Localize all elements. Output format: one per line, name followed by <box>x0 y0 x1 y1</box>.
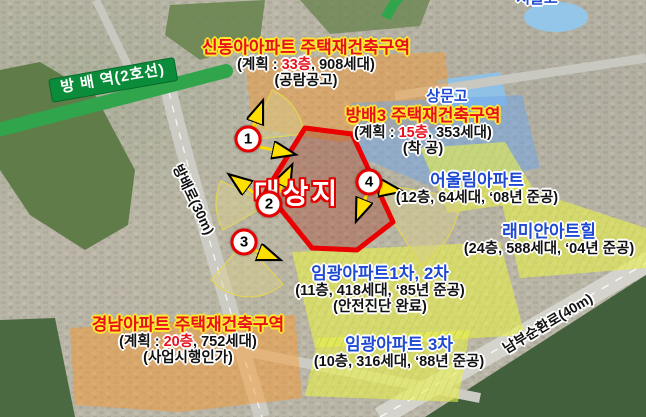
zone-title: 방배3 주택재건축구역 <box>346 106 501 125</box>
marker-4: 4 <box>356 169 383 196</box>
zone-status: (공람공고) <box>202 73 410 89</box>
apartment-label-raemian: 래미안아트힐 (24층, 588세대, ‘04년 준공) <box>464 222 634 257</box>
plan-floors: 33층 <box>282 57 311 73</box>
apartment-details: (24층, 588세대, ‘04년 준공) <box>464 241 634 257</box>
school-label-seoul: 서울고 <box>516 0 557 8</box>
zone-status: (착 공) <box>346 141 501 157</box>
zone-title: 신동아아파트 주택재건축구역 <box>202 38 410 57</box>
apartment-name: 래미안아트힐 <box>464 222 634 241</box>
zone-plan: (계획 : 15층, 353세대) <box>346 125 501 141</box>
aerial-map-canvas: 방 배 역(2호선) 상문고 서울고 방배로(30m) 남부순환로(40m) 대… <box>0 0 646 417</box>
apartment-label-imgwang12: 임광아파트1차, 2차 (11층, 418세대, ‘85년 준공) (안전진단 … <box>295 264 465 316</box>
school-label-sangmun: 상문고 <box>426 89 467 106</box>
apartment-label-imgwang3: 임광아파트 3차 (10층, 316세대, ‘88년 준공) <box>314 335 484 370</box>
zone-label-bangbae3: 방배3 주택재건축구역 (계획 : 15층, 353세대) (착 공) <box>346 106 501 158</box>
plan-floors: 20층 <box>164 334 193 350</box>
apartment-details: (10층, 316세대, ‘88년 준공) <box>314 354 484 370</box>
plan-floors: 15층 <box>399 125 428 141</box>
apartment-details: (12층, 64세대, ‘08년 준공) <box>396 190 558 206</box>
apartment-name: 임광아파트 3차 <box>314 335 484 354</box>
apartment-name: 어울림아파트 <box>396 171 558 190</box>
zone-label-sindonga: 신동아아파트 주택재건축구역 (계획 : 33층, 908세대) (공람공고) <box>202 38 410 90</box>
zone-plan: (계획 : 20층, 752세대) <box>92 334 284 350</box>
zone-plan: (계획 : 33층, 908세대) <box>202 57 410 73</box>
zone-status: (사업시행인가) <box>92 350 284 366</box>
marker-1: 1 <box>235 126 262 153</box>
apartment-name: 임광아파트1차, 2차 <box>295 264 465 283</box>
marker-3: 3 <box>231 229 258 256</box>
apartment-label-eoullim: 어울림아파트 (12층, 64세대, ‘08년 준공) <box>396 171 558 206</box>
zone-title: 경남아파트 주택재건축구역 <box>92 315 284 334</box>
apartment-extra: (안전진단 완료) <box>295 299 465 315</box>
marker-2: 2 <box>256 191 283 218</box>
zone-label-gyeongnam: 경남아파트 주택재건축구역 (계획 : 20층, 752세대) (사업시행인가) <box>92 315 284 367</box>
apartment-details: (11층, 418세대, ‘85년 준공) <box>295 283 465 299</box>
